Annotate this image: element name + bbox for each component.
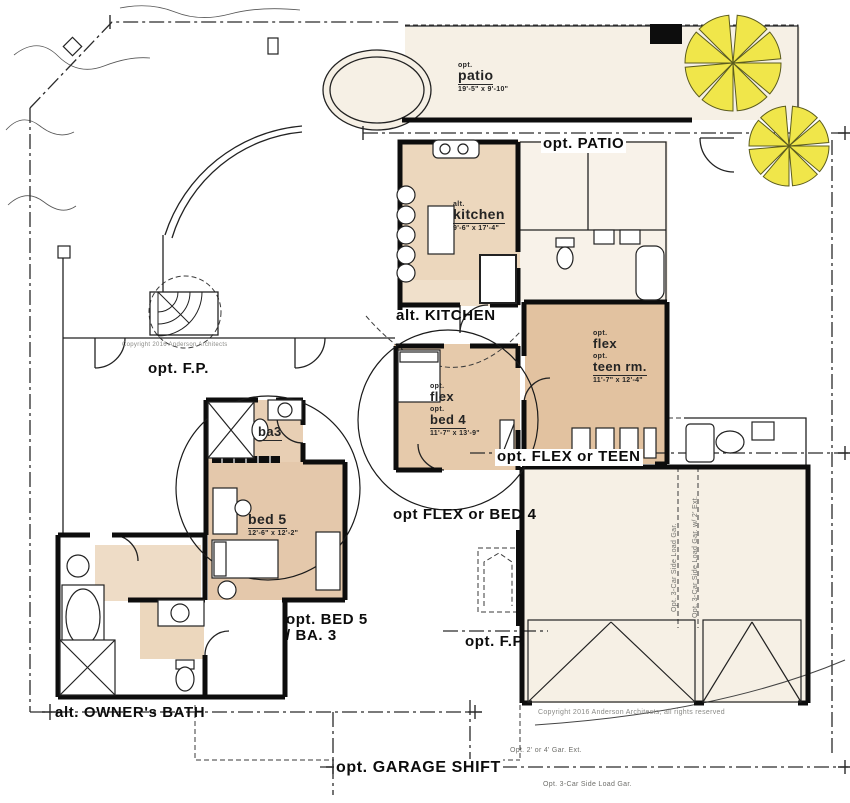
floor-plan-drawing bbox=[0, 0, 850, 803]
callout-line: opt. BED 5 bbox=[286, 612, 368, 628]
note-copyright-garage: Copyright 2016 Anderson Architects, all … bbox=[538, 709, 725, 716]
note-side-load-garage-ext-vertical: Opt. 3-Car Side Load Gar. w/ 2' Ext. bbox=[692, 496, 699, 618]
landscape-contours bbox=[6, 6, 300, 210]
callout-opt-flex-or-teen: opt. FLEX or TEEN bbox=[495, 449, 643, 466]
floor-plan-page: opt. patio 19'-5" x 9'-10" opt. PATIO al… bbox=[0, 0, 850, 803]
room-label-bed5: bed 5 12'-6" x 12'-2" bbox=[248, 512, 298, 537]
callout-opt-flex-or-bed4: opt FLEX or BED 4 bbox=[391, 507, 539, 524]
room-name: teen rm. bbox=[593, 360, 647, 376]
room-name: flex bbox=[593, 337, 617, 352]
callout-alt-owners-bath: alt. OWNER's BATH bbox=[53, 705, 207, 722]
note-garage-extension: Opt. 2' or 4' Gar. Ext. bbox=[510, 747, 582, 754]
note-copyright-left: Copyright 2016 Anderson Architects bbox=[122, 342, 228, 348]
callout-opt-fp-left: opt. F.P. bbox=[146, 361, 211, 378]
room-dims: 12'-6" x 12'-2" bbox=[248, 530, 298, 537]
callout-opt-patio: opt. PATIO bbox=[541, 136, 626, 153]
callout-line: / BA. 3 bbox=[286, 628, 368, 644]
room-label-ba3: ba3 bbox=[258, 424, 282, 441]
room-name: patio bbox=[458, 68, 493, 85]
room-name: flex bbox=[430, 390, 454, 405]
stair-fan bbox=[158, 292, 202, 336]
room-dims: 11'-7" x 13'-9" bbox=[430, 430, 480, 437]
room-name: kitchen bbox=[453, 207, 505, 224]
note-side-load-garage-bottom: Opt. 3-Car Side Load Gar. bbox=[543, 781, 632, 788]
callout-alt-kitchen: alt. KITCHEN bbox=[394, 308, 498, 325]
room-label-patio: opt. patio 19'-5" x 9'-10" bbox=[458, 62, 508, 93]
room-dims: 9'-6" x 17'-4" bbox=[453, 225, 505, 232]
room-label-flex-bed4: opt. flex opt. bed 4 11'-7" x 13'-9" bbox=[430, 383, 480, 438]
room-label-kitchen: alt. kitchen 9'-6" x 17'-4" bbox=[453, 201, 505, 232]
callout-opt-garage-shift: opt. GARAGE SHIFT bbox=[334, 759, 503, 777]
room-dims: 11'-7" x 12'-4" bbox=[593, 377, 647, 384]
note-side-load-garage-vertical: Opt. 3-Car Side Load Gar. bbox=[671, 523, 678, 612]
room-name: ba3 bbox=[258, 425, 282, 441]
room-name: bed 4 bbox=[430, 413, 466, 429]
callout-opt-bed5-ba3: opt. BED 5 / BA. 3 bbox=[284, 612, 370, 644]
callout-opt-fp-bottom: opt. F.P. bbox=[463, 634, 528, 651]
room-dims: 19'-5" x 9'-10" bbox=[458, 86, 508, 93]
room-label-flex-teen: opt. flex opt. teen rm. 11'-7" x 12'-4" bbox=[593, 330, 647, 385]
room-name: bed 5 bbox=[248, 512, 287, 529]
